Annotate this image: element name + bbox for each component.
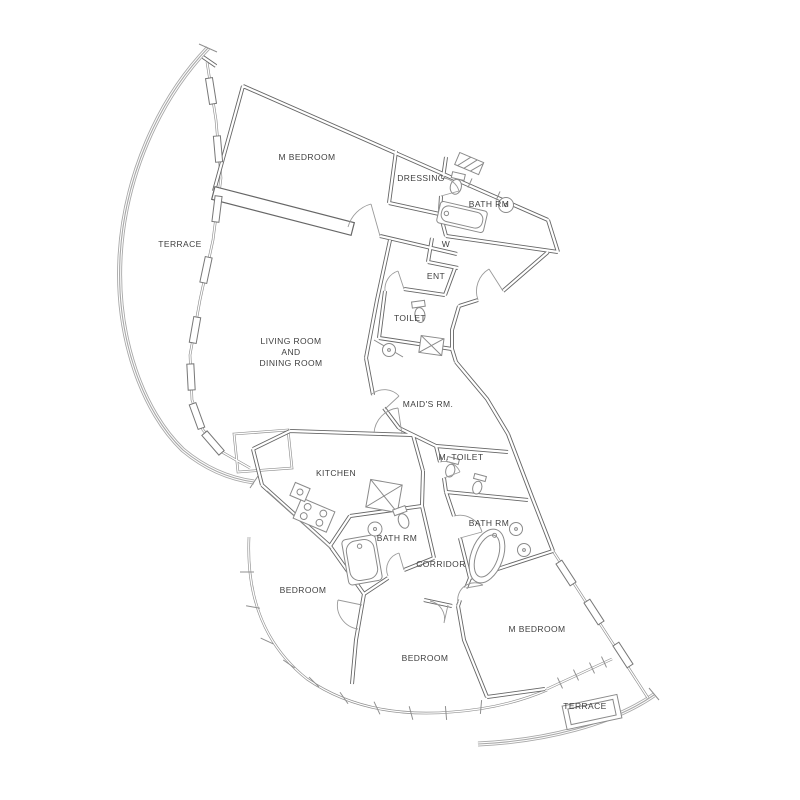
room-label-m-toilet: M. TOILET bbox=[439, 452, 484, 462]
room-label-ent: ENT bbox=[427, 271, 445, 281]
room-label-terrace-bottom: TERRACE bbox=[563, 701, 606, 711]
window-blocks bbox=[187, 78, 633, 668]
shaft-x-kitchen bbox=[366, 479, 402, 512]
room-label-m-bedroom-top: M BEDROOM bbox=[279, 152, 336, 162]
room-label-living-1: LIVING ROOM bbox=[260, 336, 321, 346]
wall-column-bar bbox=[212, 187, 355, 236]
shaft-hatched bbox=[455, 152, 484, 174]
room-label-dressing: DRESSING bbox=[397, 173, 445, 183]
room-label-corridor: CORRIDOR bbox=[416, 559, 465, 569]
room-label-m-bedroom-bottom: M BEDROOM bbox=[509, 624, 566, 634]
shaft-x-guest bbox=[419, 336, 444, 356]
room-label-bedroom-bottom: BEDROOM bbox=[402, 653, 449, 663]
room-label-closet-w: W bbox=[442, 239, 450, 249]
bidet-master bbox=[470, 474, 487, 496]
room-label-bath-top: BATH RM bbox=[469, 199, 509, 209]
sink-right-2 bbox=[518, 544, 531, 557]
kitchen-sink bbox=[290, 482, 310, 501]
floor-plan-page: M BEDROOM DRESSING BATH RM TERRACE W ENT… bbox=[0, 0, 800, 800]
room-label-toilet: TOILET bbox=[394, 313, 426, 323]
terrace-planter bbox=[562, 694, 622, 729]
room-label-terrace-left: TERRACE bbox=[158, 239, 201, 249]
room-label-living-2: AND bbox=[281, 347, 300, 357]
room-label-bath-right: BATH RM bbox=[469, 518, 509, 528]
room-label-bedroom-left: BEDROOM bbox=[280, 585, 327, 595]
room-label-living-3: DINING ROOM bbox=[260, 358, 323, 368]
room-label-bath-mid: BATH RM bbox=[377, 533, 417, 543]
kitchen-stove bbox=[293, 498, 335, 532]
window-ticks bbox=[240, 178, 607, 720]
sink-right-1 bbox=[510, 523, 523, 536]
exterior-thin-walls bbox=[190, 62, 648, 713]
room-label-maids-room: MAID'S RM. bbox=[403, 399, 453, 409]
room-label-kitchen: KITCHEN bbox=[316, 468, 356, 478]
floor-plan-svg: M BEDROOM DRESSING BATH RM TERRACE W ENT… bbox=[0, 0, 800, 800]
